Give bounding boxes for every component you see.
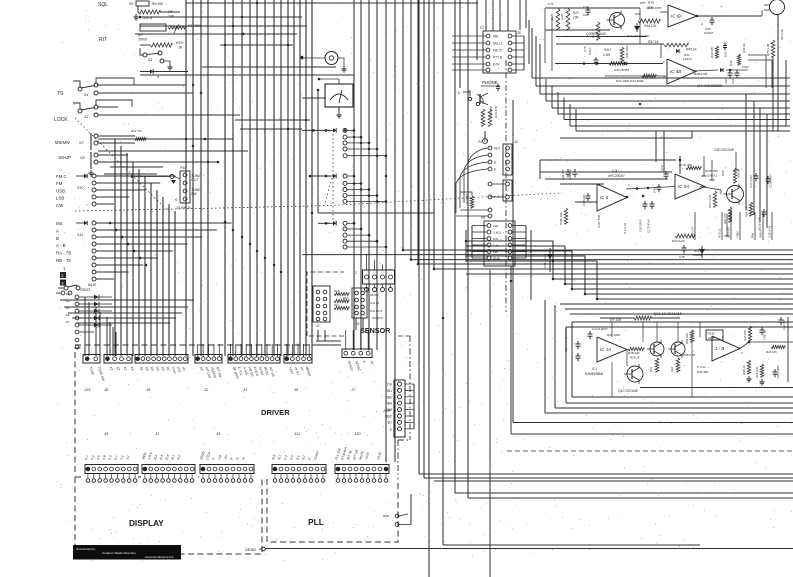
svg-text:uPC2002V: uPC2002V <box>608 174 625 178</box>
svg-text:MUTE: MUTE <box>370 293 379 297</box>
svg-text:C42 220P: C42 220P <box>639 219 643 232</box>
svg-text:R49 470: R49 470 <box>710 47 714 58</box>
svg-text:R78 1.5K: R78 1.5K <box>766 42 770 56</box>
svg-text:J11: J11 <box>293 431 300 436</box>
svg-text:C4B 220: C4B 220 <box>582 194 586 206</box>
svg-text:P4: P4 <box>478 140 482 144</box>
svg-text:S4: S4 <box>84 93 88 97</box>
svg-text:R4B: R4B <box>721 170 725 176</box>
svg-text:DB2: DB2 <box>386 395 393 399</box>
svg-text:R-5 4.1K: R-5 4.1K <box>623 223 627 234</box>
svg-text:J5: J5 <box>516 31 521 35</box>
svg-text:8.0V: 8.0V <box>493 63 500 67</box>
svg-text:R22: R22 <box>573 11 579 15</box>
svg-text:S3: S3 <box>84 115 88 119</box>
svg-text:SELL2: SELL2 <box>493 42 503 46</box>
svg-text:J10: J10 <box>353 431 361 436</box>
svg-text:RY 100: RY 100 <box>610 318 621 322</box>
svg-text:Q30 2SC945: Q30 2SC945 <box>586 32 606 36</box>
svg-text:C47 0.047: C47 0.047 <box>749 175 753 188</box>
svg-text:LOCK: LOCK <box>54 117 68 123</box>
svg-text:1S133: 1S133 <box>693 253 702 257</box>
svg-text:10K: 10K <box>573 16 580 20</box>
svg-text:D?H 470: D?H 470 <box>727 227 731 238</box>
svg-text:1M-UP: 1M-UP <box>58 155 71 160</box>
svg-text:KEY: KEY <box>494 146 501 150</box>
svg-text:C31: C31 <box>731 78 735 84</box>
svg-text:C172 47uP: C172 47uP <box>647 219 651 233</box>
svg-text:J5: J5 <box>293 387 299 392</box>
svg-text:R3B 1K: R3B 1K <box>742 365 746 375</box>
svg-text:1.5M: 1.5M <box>603 53 610 57</box>
svg-text:RIT: RIT <box>99 37 107 43</box>
svg-text:C4B 1B: C4B 1B <box>763 330 767 340</box>
svg-text:C117: C117 <box>660 164 664 171</box>
svg-text:R37 22K: R37 22K <box>743 330 747 341</box>
svg-text:R49 1E: R49 1E <box>742 43 746 53</box>
svg-text:R14 47: R14 47 <box>465 194 469 204</box>
svg-text:IC 5A: IC 5A <box>678 184 689 189</box>
svg-text:S1: S1 <box>148 58 152 62</box>
svg-text:R45 1K: R45 1K <box>686 48 698 52</box>
svg-text:C11B 0.047: C11B 0.047 <box>769 174 773 188</box>
svg-text:J2: J2 <box>203 387 209 392</box>
svg-text:CW: CW <box>56 203 64 208</box>
svg-text:4: 4 <box>175 198 177 202</box>
svg-text:PTT B: PTT B <box>493 56 502 60</box>
svg-text:C26: C26 <box>583 13 589 17</box>
svg-text:R170 359: R170 359 <box>705 169 718 173</box>
svg-text:NJM4558BB: NJM4558BB <box>585 372 603 376</box>
svg-text:R7B 21: R7B 21 <box>718 228 722 238</box>
svg-text:J3: J3 <box>242 387 248 392</box>
svg-text:SENSOR: SENSOR <box>360 326 391 335</box>
svg-text:R29 1K: R29 1K <box>630 356 641 360</box>
svg-text:R32: R32 <box>670 366 674 372</box>
svg-text:b: b <box>458 91 460 95</box>
svg-text:SW: SW <box>191 192 197 196</box>
svg-text:R40 470: R40 470 <box>723 213 727 224</box>
svg-text:IC 6A: IC 6A <box>671 14 682 19</box>
svg-text:P2: P2 <box>480 26 484 30</box>
svg-text:R4L1: R4L1 <box>604 48 612 52</box>
svg-text:C25 0.0047: C25 0.0047 <box>776 365 780 379</box>
svg-text:R32: R32 <box>729 60 733 66</box>
svg-text:R17 10: R17 10 <box>131 129 141 133</box>
svg-text:1S133: 1S133 <box>683 57 692 61</box>
svg-text:R44 12K: R44 12K <box>644 24 657 28</box>
svg-text:P18: P18 <box>180 166 186 170</box>
svg-text:C30: C30 <box>724 78 728 84</box>
svg-text:R84 20K: R84 20K <box>745 206 749 217</box>
svg-text:J3: J3 <box>513 140 518 144</box>
svg-text:P5: P5 <box>481 216 485 220</box>
svg-text:MS/MW: MS/MW <box>55 140 70 145</box>
svg-text:C46 470: C46 470 <box>561 169 565 180</box>
svg-text:R1A: R1A <box>343 296 349 300</box>
svg-text:R10: R10 <box>176 41 183 45</box>
svg-text:R31: R31 <box>649 366 653 372</box>
svg-text:R70: R70 <box>648 1 654 5</box>
svg-text:FM C: FM C <box>56 174 67 179</box>
svg-text:RN 45K: RN 45K <box>152 2 164 6</box>
svg-text:D6: D6 <box>66 313 70 317</box>
svg-text:R8d: R8d <box>751 232 755 238</box>
svg-text:K3L: K3L <box>493 237 499 241</box>
svg-text:2: 2 <box>354 271 357 275</box>
svg-text:R40 10K: R40 10K <box>766 350 777 354</box>
svg-text:IC 6: IC 6 <box>600 195 609 200</box>
svg-text:C4B: C4B <box>653 188 657 193</box>
svg-text:LSB: LSB <box>56 196 64 201</box>
svg-text:R43 2.2K: R43 2.2K <box>672 239 686 243</box>
svg-text:FM: FM <box>56 181 63 186</box>
svg-text:TS: TS <box>57 91 64 97</box>
svg-text:PHONE: PHONE <box>482 80 498 85</box>
svg-text:J-10: J-10 <box>382 409 390 413</box>
svg-text:DRIVER: DRIVER <box>261 408 290 417</box>
svg-text:2.2K: 2.2K <box>560 13 564 21</box>
svg-text:R29 22K: R29 22K <box>755 367 759 378</box>
svg-text:J2: J2 <box>316 324 320 328</box>
svg-text:R077 2.2K: R077 2.2K <box>708 195 712 208</box>
svg-text:IC4 NJM4558BB: IC4 NJM4558BB <box>697 84 723 88</box>
svg-text:MIC'S: MIC'S <box>493 49 502 53</box>
svg-text:DB4: DB4 <box>386 402 393 406</box>
svg-text:J1: J1 <box>154 431 159 436</box>
svg-text:0.047: 0.047 <box>588 47 592 55</box>
svg-text:B: B <box>56 236 59 241</box>
svg-text:C4B: C4B <box>679 255 685 259</box>
svg-text:CA6 8.1: CA6 8.1 <box>707 174 718 178</box>
svg-text:C14 0.0047: C14 0.0047 <box>592 327 608 331</box>
svg-text:D33 1S133: D33 1S133 <box>543 254 547 268</box>
svg-text:R36 460: R36 460 <box>697 370 708 374</box>
svg-text:USB: USB <box>56 188 65 193</box>
svg-text:0.0047: 0.0047 <box>704 31 714 35</box>
svg-text:R5: R5 <box>129 2 133 6</box>
svg-text:IC4: IC4 <box>612 169 617 173</box>
svg-text:R33 22K: R33 22K <box>685 333 689 344</box>
svg-text:DBC: DBC <box>385 415 393 419</box>
svg-text:IC 4B: IC 4B <box>670 69 681 74</box>
svg-text:C74: C74 <box>548 2 554 6</box>
svg-text:J7: J7 <box>350 387 356 392</box>
svg-text:PLL: PLL <box>308 517 324 527</box>
svg-text:C2B 4.7B: C2B 4.7B <box>768 226 772 238</box>
svg-text:(333): (333) <box>742 65 749 69</box>
svg-text:R40 470K: R40 470K <box>625 44 629 58</box>
svg-text:1S533: 1S533 <box>80 288 90 292</box>
svg-text:RMB: RMB <box>493 256 500 260</box>
svg-text:J8: J8 <box>103 387 109 392</box>
svg-text:C167 15B: C167 15B <box>597 215 601 228</box>
svg-text:C70: C70 <box>583 46 587 52</box>
svg-text:2.8QL: 2.8QL <box>493 230 502 234</box>
svg-text:PPT: PPT <box>640 1 646 5</box>
svg-text:C/H OUT: C/H OUT <box>370 309 383 313</box>
svg-text:0.01: 0.01 <box>724 51 728 57</box>
svg-text:MB: MB <box>493 250 498 254</box>
svg-text:84-B: 84-B <box>88 283 96 287</box>
svg-text:C/H IN: C/H IN <box>370 301 379 305</box>
svg-text:MIC: MIC <box>493 35 500 39</box>
svg-text:RA - TB: RA - TB <box>56 251 71 256</box>
svg-text:E: E <box>494 167 496 171</box>
svg-text:R42 100K R43 390K: R42 100K R43 390K <box>616 79 645 83</box>
svg-text:D30 1S555: D30 1S555 <box>614 68 629 72</box>
svg-text:DISPLAY: DISPLAY <box>129 519 164 528</box>
svg-text:R47 1K: R47 1K <box>648 40 660 44</box>
svg-text:IC1: IC1 <box>592 367 597 371</box>
svg-text:R13 470: R13 470 <box>494 106 498 118</box>
svg-text:D7: D7 <box>66 320 70 324</box>
svg-text:S11: S11 <box>77 233 83 237</box>
svg-text:Amateur Radio Directory: Amateur Radio Directory <box>102 551 136 555</box>
svg-text:2QL: 2QL <box>493 224 499 228</box>
svg-text:DB1: DB1 <box>386 389 393 393</box>
svg-text:IC 1A: IC 1A <box>600 347 611 352</box>
svg-text:10: 10 <box>178 46 182 50</box>
svg-text:DV: DV <box>387 383 392 387</box>
svg-text:R2B 10K: R2B 10K <box>628 351 641 355</box>
svg-text:A - B: A - B <box>56 243 66 248</box>
svg-text:R10b 10K: R10b 10K <box>559 211 563 225</box>
svg-text:C.H: C.H <box>493 243 498 247</box>
svg-text:A: A <box>56 228 59 233</box>
svg-text:S10: S10 <box>77 186 83 190</box>
svg-text:C12B 4.7K: C12B 4.7K <box>758 217 762 230</box>
svg-text:R12 100: R12 100 <box>489 106 493 118</box>
svg-text:RB - TA: RB - TA <box>56 258 71 263</box>
svg-text:J15: J15 <box>83 387 91 392</box>
svg-text:R2b 100K: R2b 100K <box>607 333 621 337</box>
svg-text:SQL: SQL <box>98 2 108 8</box>
svg-text:C4B 0.47: C4B 0.47 <box>691 226 695 238</box>
svg-text:C20 0.1: C20 0.1 <box>782 320 786 330</box>
svg-text:C44 470: C44 470 <box>568 169 572 180</box>
svg-text:10 RF J3: 10 RF J3 <box>176 206 191 210</box>
svg-text:R17b 360: R17b 360 <box>679 163 692 167</box>
svg-text:R8B 97: R8B 97 <box>759 228 763 238</box>
svg-text:www.hamdirectory.info: www.hamdirectory.info <box>145 555 174 559</box>
svg-text:1 / B: 1 / B <box>715 346 724 351</box>
svg-text:Q11-12 2SA1015: Q11-12 2SA1015 <box>654 312 682 316</box>
svg-text:2: 2 <box>662 60 665 64</box>
svg-text:J9: J9 <box>103 431 109 436</box>
svg-text:10KB: 10KB <box>138 38 147 42</box>
svg-text:G30 2SC945: G30 2SC945 <box>714 148 734 152</box>
svg-text:R1B: R1B <box>334 289 340 293</box>
svg-text:R7: R7 <box>388 421 392 425</box>
svg-text:J6: J6 <box>145 387 151 392</box>
svg-text:MS: MS <box>56 221 63 226</box>
svg-text:R1L: R1L <box>334 303 340 307</box>
svg-text:E: E <box>494 160 496 164</box>
svg-text:OUT: OUT <box>191 178 199 182</box>
svg-text:SEND: SEND <box>245 547 256 552</box>
svg-text:R3B 4.5K: R3B 4.5K <box>683 353 696 357</box>
svg-text:T9B0: T9B0 <box>736 231 740 238</box>
svg-text:R4B 470K: R4B 470K <box>694 72 709 76</box>
svg-text:P3: P3 <box>484 139 488 143</box>
svg-text:downloaded by: downloaded by <box>76 547 96 551</box>
svg-text:470K: 470K <box>646 6 654 10</box>
svg-text:P10(P7): P10(P7) <box>372 316 383 320</box>
svg-text:5-7mA: 5-7mA <box>697 365 706 369</box>
svg-text:Q10 2SC945: Q10 2SC945 <box>618 389 638 393</box>
svg-text:J4: J4 <box>215 431 221 436</box>
svg-text:SP 2.2K: SP 2.2K <box>780 28 784 40</box>
